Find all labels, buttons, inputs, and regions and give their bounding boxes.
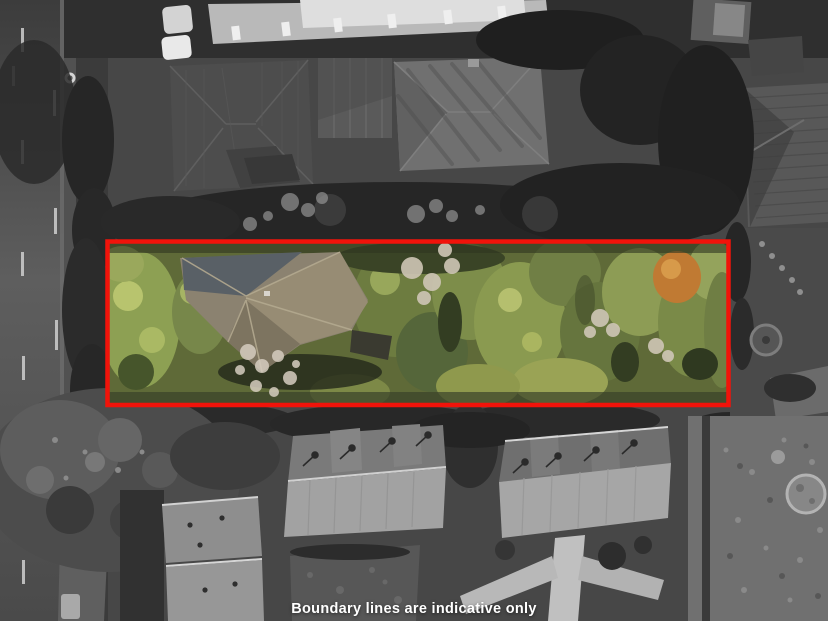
- caption-text: Boundary lines are indicative only: [0, 601, 828, 617]
- aerial-photo-canvas: [0, 0, 828, 621]
- townhouse-center: [284, 424, 446, 537]
- property-color-zone: [100, 238, 740, 410]
- flat-roof-extension: [318, 58, 392, 138]
- round-garden-feature: [787, 475, 825, 513]
- house-roof-north: [394, 57, 549, 171]
- house-roof-northwest: [170, 60, 313, 191]
- aerial-property-photo: Boundary lines are indicative only: [0, 0, 828, 621]
